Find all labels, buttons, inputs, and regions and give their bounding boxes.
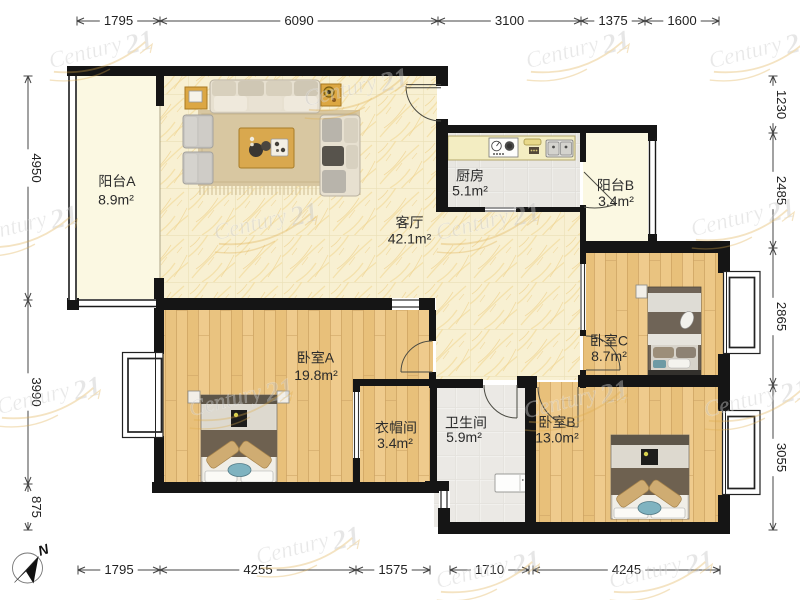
svg-text:A: A <box>325 350 335 366</box>
svg-text:19.8m²: 19.8m² <box>294 367 338 383</box>
svg-text:875: 875 <box>29 496 44 518</box>
svg-text:5.9m²: 5.9m² <box>446 429 482 445</box>
svg-text:C: C <box>618 333 628 349</box>
svg-text:1575: 1575 <box>378 562 407 577</box>
svg-text:3100: 3100 <box>495 13 524 28</box>
svg-text:8.9m²: 8.9m² <box>98 192 134 208</box>
svg-text:1795: 1795 <box>104 562 133 577</box>
svg-text:3055: 3055 <box>774 443 789 472</box>
svg-text:2865: 2865 <box>774 302 789 331</box>
svg-text:13.0m²: 13.0m² <box>535 430 579 446</box>
svg-text:1795: 1795 <box>104 13 133 28</box>
svg-text:3.4m²: 3.4m² <box>377 435 413 451</box>
svg-text:6090: 6090 <box>284 13 313 28</box>
svg-text:42.1m²: 42.1m² <box>388 230 432 246</box>
svg-text:3.4m²: 3.4m² <box>598 193 634 209</box>
svg-text:4950: 4950 <box>29 153 44 182</box>
svg-text:A: A <box>126 173 136 189</box>
svg-text:B: B <box>625 177 634 193</box>
svg-text:B: B <box>566 414 575 430</box>
svg-text:5.1m²: 5.1m² <box>452 183 488 199</box>
svg-text:1600: 1600 <box>667 13 696 28</box>
svg-text:8.7m²: 8.7m² <box>591 348 627 364</box>
svg-text:1230: 1230 <box>774 90 789 119</box>
